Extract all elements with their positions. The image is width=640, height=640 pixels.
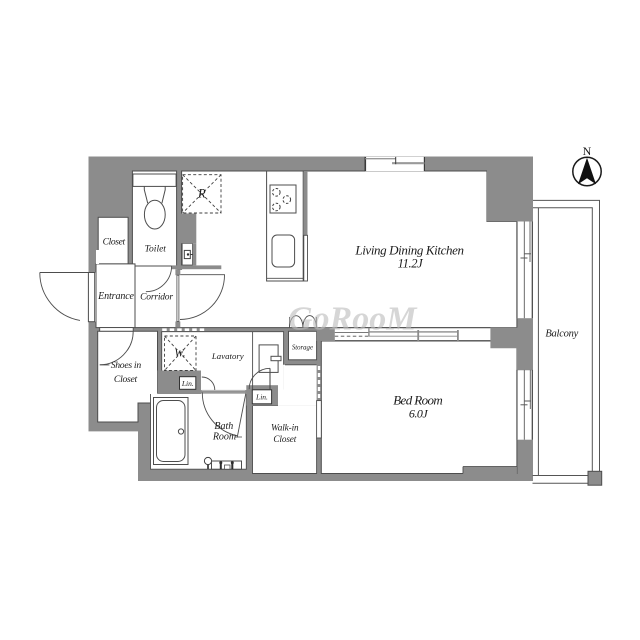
svg-text:Living Dining Kitchen: Living Dining Kitchen [354,242,463,257]
svg-text:W.: W. [175,347,186,359]
svg-text:Lin.: Lin. [255,392,268,401]
svg-text:Lavatory: Lavatory [211,351,244,361]
svg-text:11.2J: 11.2J [398,257,425,271]
svg-text:Closet: Closet [103,238,126,248]
svg-text:Closet: Closet [273,434,296,444]
svg-text:Room: Room [212,432,236,443]
svg-text:Bed Room: Bed Room [393,392,442,407]
svg-text:Closet: Closet [114,374,138,385]
svg-text:Bath: Bath [214,421,233,432]
svg-text:N: N [583,144,592,158]
svg-text:GoRooM: GoRooM [288,301,418,338]
svg-text:Walk-in: Walk-in [271,423,299,433]
svg-text:Toilet: Toilet [145,245,167,255]
svg-text:Shoes in: Shoes in [111,360,142,371]
svg-text:Corridor: Corridor [140,292,173,302]
svg-text:Entrance: Entrance [97,291,134,302]
svg-text:6.0J: 6.0J [409,407,429,421]
svg-text:Lin.: Lin. [181,379,194,388]
svg-text:Storage: Storage [292,344,313,351]
svg-text:R: R [197,187,206,201]
svg-text:Balcony: Balcony [545,328,578,339]
